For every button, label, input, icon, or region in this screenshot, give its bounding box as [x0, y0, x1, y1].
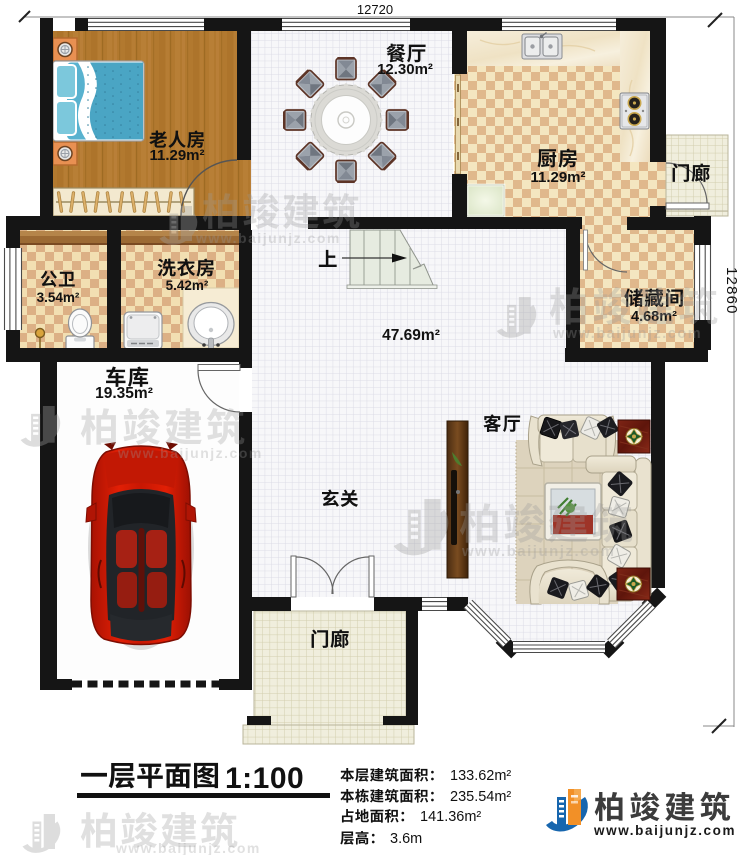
svg-text:133.62m²: 133.62m²: [450, 768, 511, 784]
svg-text:47.69m²: 47.69m²: [382, 327, 440, 344]
svg-text:235.54m²: 235.54m²: [450, 789, 511, 805]
svg-text:12.30m²: 12.30m²: [377, 61, 433, 78]
svg-text:www.baijunjz.com: www.baijunjz.com: [552, 326, 702, 342]
svg-text:5.42m²: 5.42m²: [166, 278, 209, 293]
svg-text:1:100: 1:100: [225, 762, 304, 795]
svg-text:www.baijunjz.com: www.baijunjz.com: [115, 840, 261, 855]
svg-text:www.baijunjz.com: www.baijunjz.com: [593, 823, 736, 838]
svg-text:www.baijunjz.com: www.baijunjz.com: [461, 543, 615, 560]
svg-text:11.29m²: 11.29m²: [149, 147, 204, 164]
svg-text:www.baijunjz.com: www.baijunjz.com: [117, 445, 263, 461]
svg-text:12860: 12860: [723, 267, 740, 315]
svg-text:www.baijunjz.com: www.baijunjz.com: [195, 230, 341, 246]
svg-text:141.36m²: 141.36m²: [420, 809, 481, 825]
svg-text:12720: 12720: [357, 2, 393, 17]
svg-text:3.54m²: 3.54m²: [37, 290, 80, 305]
svg-text:3.6m: 3.6m: [390, 831, 422, 847]
svg-text:11.29m²: 11.29m²: [530, 169, 585, 186]
svg-text:19.35m²: 19.35m²: [95, 385, 153, 402]
